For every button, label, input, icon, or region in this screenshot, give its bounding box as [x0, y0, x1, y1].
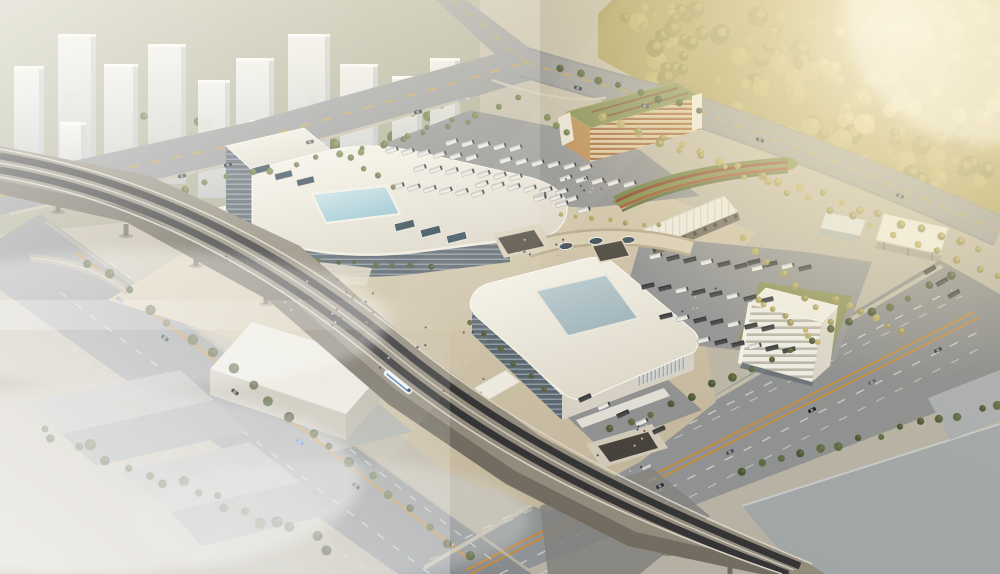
atmosphere [0, 0, 1000, 574]
warm-tint [0, 0, 1000, 574]
rendering-canvas [0, 0, 1000, 574]
aerial-rendering-transit-hub [0, 0, 1000, 574]
